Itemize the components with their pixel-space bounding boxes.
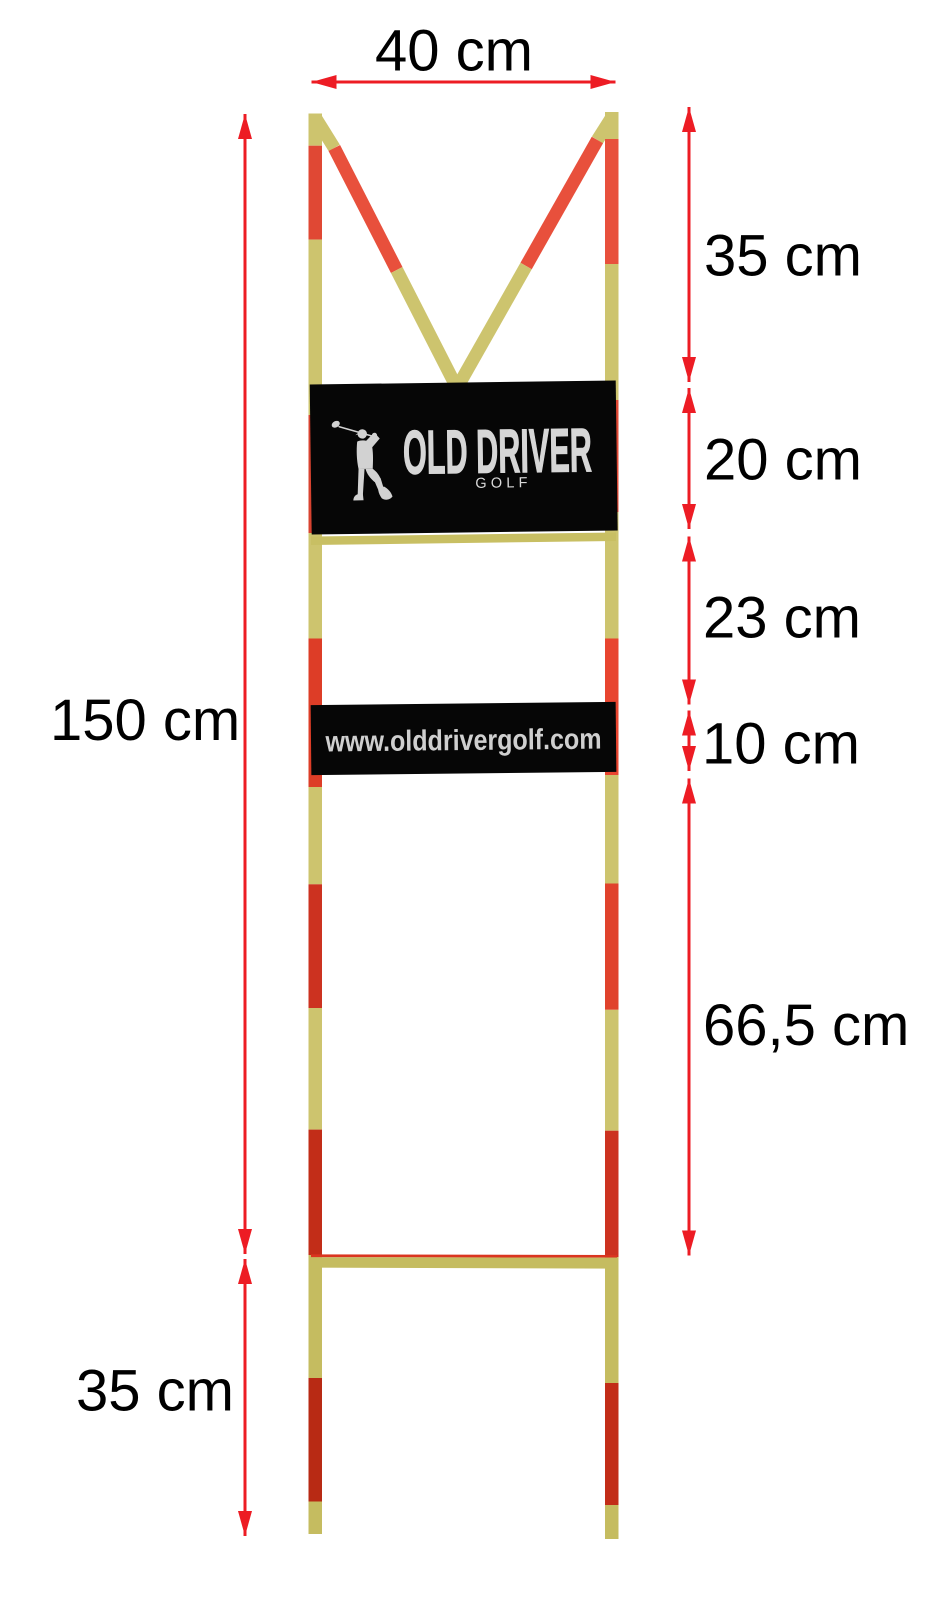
svg-text:35 cm: 35 cm — [76, 1359, 234, 1424]
svg-text:35 cm: 35 cm — [704, 224, 862, 289]
svg-text:www.olddrivergolf.com: www.olddrivergolf.com — [325, 724, 602, 759]
svg-text:GOLF: GOLF — [475, 475, 531, 492]
svg-text:66,5 cm: 66,5 cm — [703, 993, 909, 1058]
svg-text:150 cm: 150 cm — [50, 688, 240, 753]
svg-text:23 cm: 23 cm — [703, 586, 861, 651]
svg-text:10 cm: 10 cm — [702, 712, 860, 777]
svg-text:40 cm: 40 cm — [375, 19, 533, 84]
svg-text:20 cm: 20 cm — [704, 428, 862, 493]
